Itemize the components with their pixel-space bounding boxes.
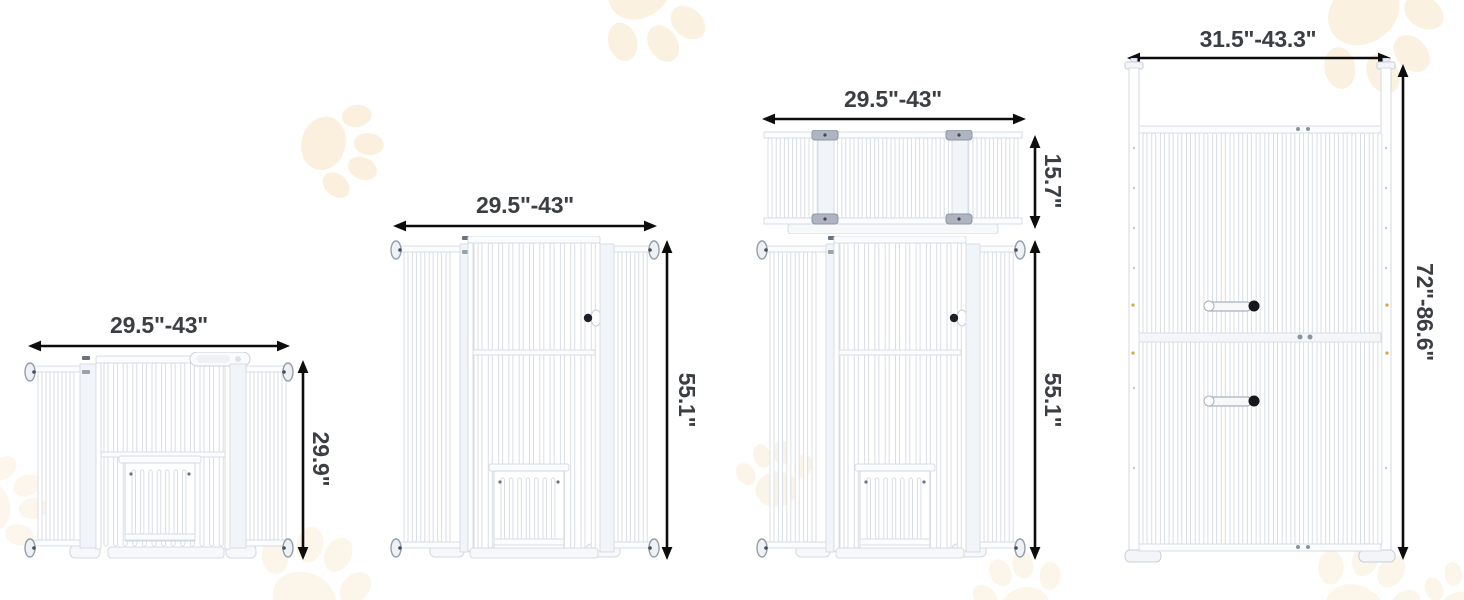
- pressure-cup: [25, 539, 36, 557]
- height-dimension-label: 55.1": [1038, 373, 1066, 428]
- width-dimension-arrow: [393, 219, 657, 233]
- paw-print-watermark: [560, 0, 743, 94]
- pet-door: [119, 456, 201, 541]
- paw-print-watermark: [1422, 558, 1464, 600]
- height-dimension-label: 72"-86.6": [1410, 263, 1438, 361]
- size-diagram-page: 29.5"-43": [0, 0, 1464, 600]
- extra-tall-gate-illustration: [390, 236, 660, 562]
- width-dimension-label: 29.5"-43": [392, 192, 658, 220]
- height-dimension-arrow: [1396, 64, 1410, 560]
- pressure-cup: [282, 363, 293, 381]
- pressure-cup: [25, 363, 36, 381]
- left-panel-bars: [38, 372, 74, 540]
- bottom-rail: [1139, 544, 1381, 551]
- gate-latch: [1204, 396, 1260, 407]
- height-dimension-label: 29.9": [306, 432, 334, 487]
- right-tension-post: [230, 364, 246, 548]
- right-panel-bars: [250, 372, 286, 540]
- top-rail: [1139, 126, 1381, 133]
- extension-bars: [768, 138, 1018, 218]
- floor-to-ceiling-gate-illustration: [1120, 58, 1400, 564]
- left-tension-post: [80, 364, 96, 548]
- threshold-bar: [108, 547, 224, 558]
- width-dimension-arrow: [762, 112, 1026, 126]
- height-dimension-label: 55.1": [672, 373, 700, 428]
- width-dimension-arrow: [28, 339, 290, 353]
- pressure-cup: [282, 539, 293, 557]
- gate-latch: [1204, 301, 1260, 312]
- width-dimension-label: 31.5"-43.3": [1125, 26, 1391, 54]
- extension-height-dimension-label: 15.7": [1038, 154, 1066, 209]
- mid-rail: [1139, 333, 1381, 342]
- extra-tall-gate-illustration: [756, 236, 1026, 562]
- width-dimension-label: 29.5"-43": [760, 86, 1026, 114]
- standard-gate-illustration: [24, 352, 294, 562]
- width-dimension-label: 29.5"-43": [28, 312, 290, 340]
- extension-panel-illustration: [758, 130, 1028, 234]
- paw-print-watermark: [276, 86, 398, 208]
